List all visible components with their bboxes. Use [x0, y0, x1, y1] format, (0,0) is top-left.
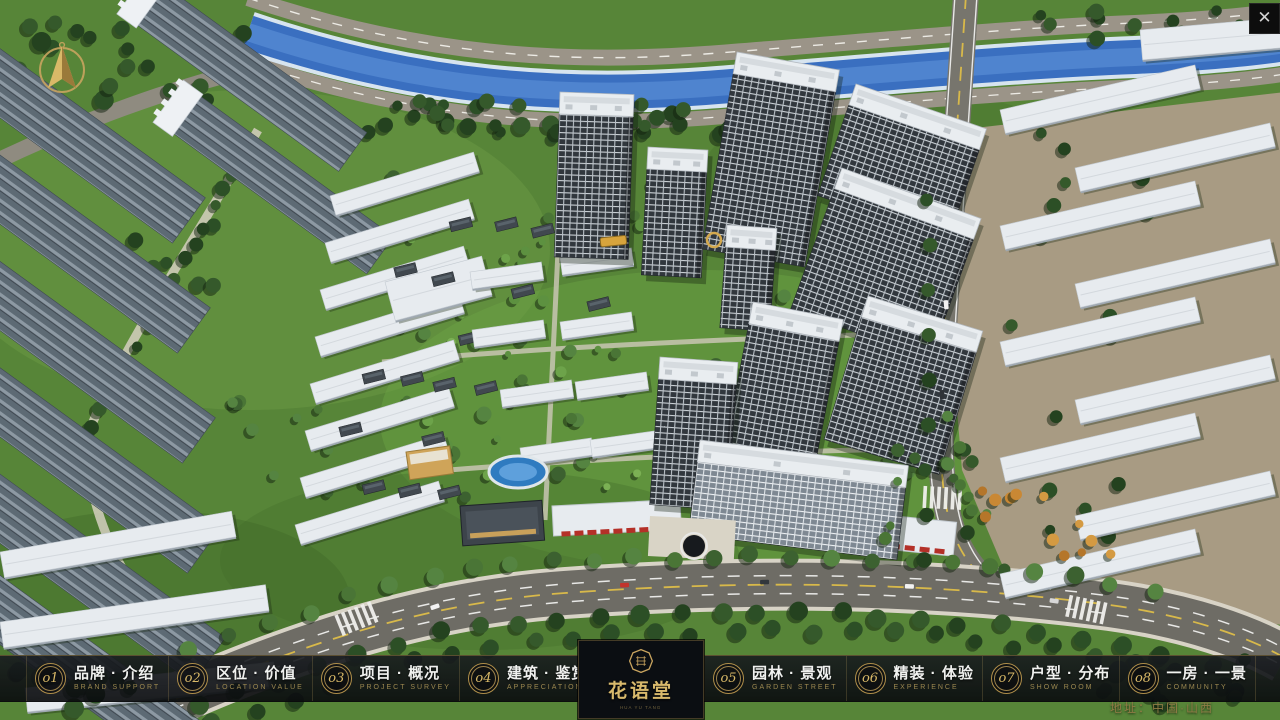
menu-group-right: o5 园林 · 景观 GARDEN STREET o6 精装 · 体验 EXPE… [704, 656, 1256, 701]
logo-caption: HUA YU TANG [620, 705, 661, 710]
masterplan-viewport[interactable] [0, 0, 1280, 720]
logo-title: 花语堂 [608, 676, 674, 703]
menu-item-label: 精装 · 体验 [894, 666, 974, 682]
menu-item-number-badge: o3 [321, 663, 352, 694]
menu-item-brand[interactable]: o1 品牌 · 介绍 BRAND SUPPORT [26, 656, 169, 701]
menu-item-experience[interactable]: o6 精装 · 体验 EXPERIENCE [847, 656, 984, 701]
menu-item-label: 一房 · 一景 [1167, 666, 1247, 682]
menu-item-location[interactable]: o2 区位 · 价值 LOCATION VALUE [169, 656, 313, 701]
menu-item-sublabel: EXPERIENCE [894, 684, 974, 691]
menu-item-floorplan[interactable]: o7 户型 · 分布 SHOW ROOM [983, 656, 1120, 701]
address-text: 地址：中国·山西 [1110, 699, 1214, 716]
menu-group-left: o1 品牌 · 介绍 BRAND SUPPORT o2 区位 · 价值 LOCA… [26, 656, 578, 701]
menu-item-number-badge: o4 [468, 663, 499, 694]
close-button[interactable]: ✕ [1249, 3, 1280, 34]
menu-item-label: 项目 · 概况 [360, 666, 451, 682]
menu-item-architecture[interactable]: o4 建筑 · 鉴赏 APPRECIATION [460, 656, 596, 701]
menu-item-sublabel: LOCATION VALUE [216, 684, 304, 691]
logo-panel[interactable]: 花语堂 HUA YU TANG [578, 640, 704, 719]
menu-item-sublabel: SHOW ROOM [1030, 684, 1110, 691]
menu-item-sublabel: PROJECT SURVEY [360, 684, 451, 691]
clubhouse [460, 500, 545, 546]
menu-item-sublabel: BRAND SUPPORT [74, 684, 160, 691]
menu-item-garden[interactable]: o5 园林 · 景观 GARDEN STREET [704, 656, 847, 701]
menu-item-number-badge: o7 [991, 663, 1022, 694]
menu-item-sublabel: GARDEN STREET [752, 684, 838, 691]
menu-item-sublabel: COMMUNITY [1167, 684, 1247, 691]
menu-item-label: 建筑 · 鉴赏 [507, 666, 587, 682]
menu-item-label: 品牌 · 介绍 [74, 666, 160, 682]
menu-item-number-badge: o6 [855, 663, 886, 694]
menu-item-number-badge: o5 [713, 663, 744, 694]
menu-item-label: 区位 · 价值 [216, 666, 304, 682]
menu-item-label: 户型 · 分布 [1030, 666, 1110, 682]
menu-item-project[interactable]: o3 项目 · 概况 PROJECT SURVEY [313, 656, 460, 701]
presentation-window: ✕ o1 品牌 · 介绍 BRAND SUPPORT o2 区位 · 价值 LO… [0, 0, 1280, 720]
menu-item-label: 园林 · 景观 [752, 666, 838, 682]
menu-item-sublabel: APPRECIATION [507, 684, 587, 691]
menu-item-community[interactable]: o8 一房 · 一景 COMMUNITY [1120, 656, 1257, 701]
menu-item-number-badge: o1 [35, 663, 66, 694]
seal-emblem-icon [628, 648, 654, 674]
menu-item-number-badge: o8 [1128, 663, 1159, 694]
menu-item-number-badge: o2 [177, 663, 208, 694]
